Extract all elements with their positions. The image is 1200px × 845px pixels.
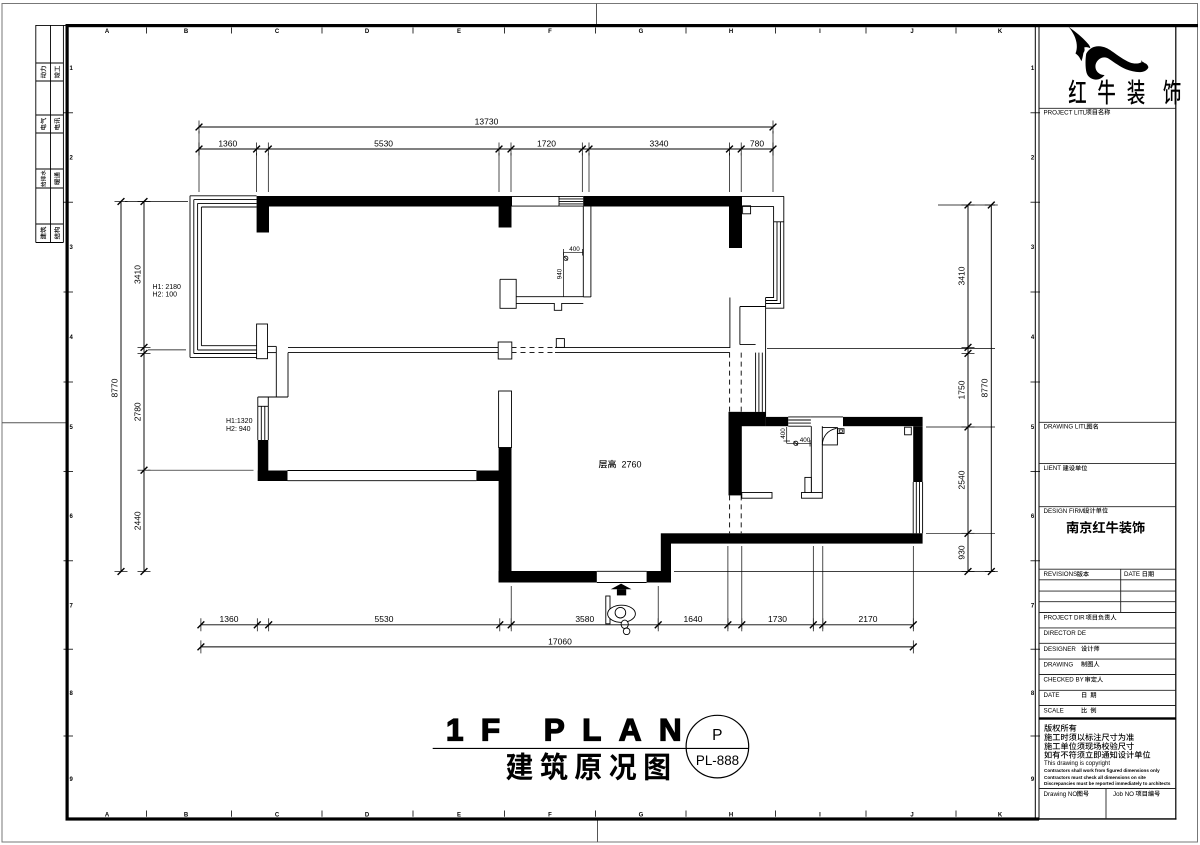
svg-text:G: G xyxy=(639,812,644,818)
svg-text:SCALE: SCALE xyxy=(1044,708,1064,715)
svg-text:H2: 100: H2: 100 xyxy=(153,292,178,299)
svg-text:LIENT: LIENT xyxy=(1044,465,1062,472)
svg-text:K: K xyxy=(998,812,1003,818)
svg-text:2170: 2170 xyxy=(859,614,878,624)
svg-text:17060: 17060 xyxy=(548,636,572,646)
svg-text:400: 400 xyxy=(780,428,787,439)
svg-text:2760: 2760 xyxy=(622,459,642,469)
svg-text:930: 930 xyxy=(956,545,966,559)
svg-text:5530: 5530 xyxy=(374,138,393,148)
svg-text:H1:1320: H1:1320 xyxy=(226,418,253,425)
svg-text:C: C xyxy=(275,29,280,35)
svg-text:PL-888: PL-888 xyxy=(696,753,739,768)
svg-text:13730: 13730 xyxy=(475,116,499,126)
svg-text:Drawing NO: Drawing NO xyxy=(1044,791,1078,798)
svg-text:B: B xyxy=(184,29,189,35)
svg-text:REVISIONS: REVISIONS xyxy=(1044,571,1078,578)
svg-text:2780: 2780 xyxy=(133,402,143,421)
svg-text:1F PLAN: 1F PLAN xyxy=(446,712,699,748)
svg-text:DRAWING: DRAWING xyxy=(1044,661,1074,668)
svg-text:D: D xyxy=(365,812,370,818)
svg-text:J: J xyxy=(910,29,913,35)
svg-text:P: P xyxy=(712,727,722,744)
svg-text:PROJECT LITL: PROJECT LITL xyxy=(1044,109,1087,116)
svg-text:DIRECTOR DE: DIRECTOR DE xyxy=(1044,630,1087,637)
svg-text:1730: 1730 xyxy=(768,614,787,624)
svg-text:2440: 2440 xyxy=(133,511,143,530)
svg-text:E: E xyxy=(457,29,461,35)
svg-text:Discrepancies must be reported: Discrepancies must be reported immediate… xyxy=(1044,781,1171,786)
svg-text:F: F xyxy=(548,812,552,818)
svg-text:DATE: DATE xyxy=(1044,692,1060,699)
svg-text:A: A xyxy=(105,812,110,818)
svg-text:H2: 940: H2: 940 xyxy=(226,426,251,433)
svg-text:1360: 1360 xyxy=(220,614,239,624)
svg-text:E: E xyxy=(457,812,461,818)
svg-text:H: H xyxy=(729,812,733,818)
svg-text:400: 400 xyxy=(569,246,580,253)
svg-text:1720: 1720 xyxy=(537,138,556,148)
svg-text:DESIGN FIRM: DESIGN FIRM xyxy=(1044,508,1085,515)
svg-text:This drawing is copyright: This drawing is copyright xyxy=(1044,761,1110,767)
svg-text:C: C xyxy=(275,812,280,818)
svg-text:D: D xyxy=(365,29,370,35)
svg-text:8770: 8770 xyxy=(980,378,990,397)
svg-text:2540: 2540 xyxy=(956,470,966,489)
svg-text:3580: 3580 xyxy=(575,614,594,624)
svg-text:K: K xyxy=(998,29,1003,35)
svg-text:H: H xyxy=(729,29,733,35)
svg-text:Job NO: Job NO xyxy=(1113,791,1134,798)
svg-text:3340: 3340 xyxy=(650,138,669,148)
svg-text:DESIGNER: DESIGNER xyxy=(1044,646,1077,653)
svg-text:J: J xyxy=(910,812,913,818)
svg-text:DATE: DATE xyxy=(1124,571,1140,578)
svg-text:5530: 5530 xyxy=(375,614,394,624)
svg-text:Contractors must check all dim: Contractors must check all dimensions on… xyxy=(1044,775,1146,780)
svg-text:DRAWING LITL: DRAWING LITL xyxy=(1044,424,1088,431)
svg-text:8770: 8770 xyxy=(110,378,120,397)
svg-text:3410: 3410 xyxy=(133,265,143,284)
svg-text:A: A xyxy=(105,29,110,35)
svg-text:CHECKED BY: CHECKED BY xyxy=(1044,677,1084,684)
svg-text:H1: 2180: H1: 2180 xyxy=(153,284,182,291)
svg-text:F: F xyxy=(548,29,552,35)
svg-text:400: 400 xyxy=(800,437,811,444)
svg-text:3410: 3410 xyxy=(956,266,966,285)
svg-text:G: G xyxy=(639,29,644,35)
svg-text:1640: 1640 xyxy=(684,614,703,624)
svg-text:Contractors shall work from fi: Contractors shall work from figured dime… xyxy=(1044,768,1160,773)
svg-text:780: 780 xyxy=(750,138,764,148)
svg-text:B: B xyxy=(184,812,189,818)
svg-text:1750: 1750 xyxy=(956,380,966,399)
svg-text:1360: 1360 xyxy=(218,138,237,148)
svg-text:PROJECT DIR: PROJECT DIR xyxy=(1044,615,1086,622)
svg-text:940: 940 xyxy=(556,268,563,279)
